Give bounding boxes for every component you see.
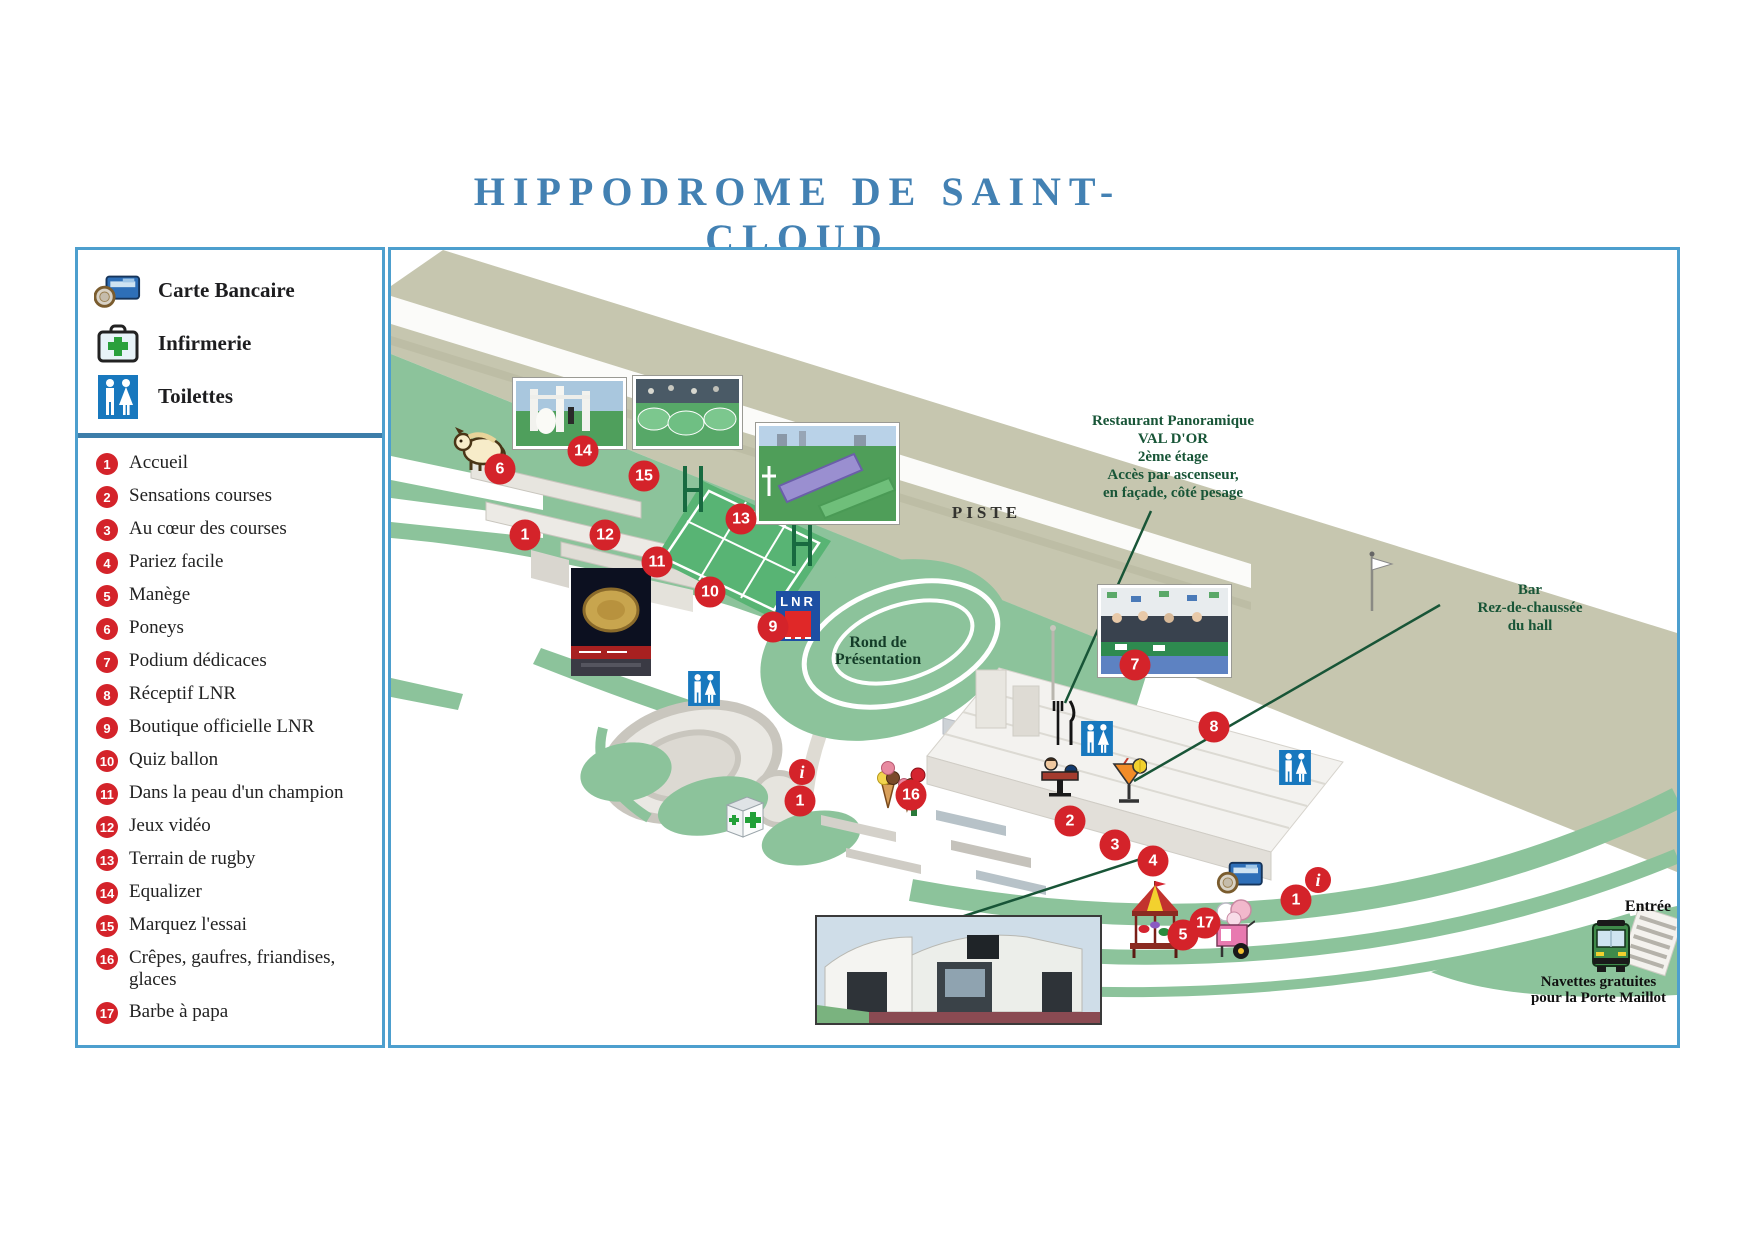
map-marker-9: 9 bbox=[758, 612, 789, 643]
legend-badge: 7 bbox=[96, 651, 118, 673]
legend-item-13: 13Terrain de rugby bbox=[96, 848, 374, 871]
toilets-icon bbox=[1276, 750, 1314, 785]
legend-item-14: 14Equalizer bbox=[96, 881, 374, 904]
map-marker-3: 3 bbox=[1100, 830, 1131, 861]
legend-list: 1Accueil 2Sensations courses 3Au cœur de… bbox=[78, 450, 382, 1024]
legend-item-5: 5Manège bbox=[96, 584, 374, 607]
legend-item-2: 2Sensations courses bbox=[96, 485, 374, 508]
legend-service-toilettes: Toilettes bbox=[78, 370, 382, 423]
legend-badge: 2 bbox=[96, 486, 118, 508]
legend-item-1: 1Accueil bbox=[96, 452, 374, 475]
map-marker-15: 15 bbox=[629, 461, 660, 492]
legend-badge: 4 bbox=[96, 552, 118, 574]
legend-badge: 16 bbox=[96, 948, 118, 970]
shuttle-bus-icon bbox=[1589, 918, 1633, 972]
map-marker-1-b: 1 bbox=[785, 786, 816, 817]
bar-annotation: Bar Rez-de-chaussée du hall bbox=[1450, 581, 1610, 635]
credit-card-icon bbox=[94, 273, 142, 309]
first-aid-icon bbox=[94, 323, 142, 365]
betting-table-icon bbox=[1039, 755, 1081, 797]
legend-badge: 1 bbox=[96, 453, 118, 475]
piste-label: PISTE bbox=[939, 503, 1034, 523]
legend-service-infirmerie: Infirmerie bbox=[78, 317, 382, 370]
lnr-flag-label: LNR bbox=[780, 594, 816, 609]
legend-service-carte-bancaire: Carte Bancaire bbox=[78, 264, 382, 317]
legend-divider bbox=[78, 433, 382, 438]
legend-badge: 6 bbox=[96, 618, 118, 640]
legend-item-17: 17Barbe à papa bbox=[96, 1001, 374, 1024]
map-marker-16: 16 bbox=[896, 780, 927, 811]
navettes-label: Navettes gratuites pour la Porte Maillot bbox=[1511, 974, 1680, 1006]
map-marker-2: 2 bbox=[1055, 806, 1086, 837]
map-marker-info-b: i bbox=[1305, 867, 1331, 893]
map-marker-1-c: 1 bbox=[1281, 885, 1312, 916]
legend-service-label: Toilettes bbox=[158, 384, 233, 409]
rond-presentation-label: Rond de Présentation bbox=[814, 634, 942, 668]
legend-item-8: 8Réceptif LNR bbox=[96, 683, 374, 706]
legend-item-3: 3Au cœur des courses bbox=[96, 518, 374, 541]
legend-item-7: 7Podium dédicaces bbox=[96, 650, 374, 673]
flagpole-icon bbox=[1366, 549, 1394, 613]
legend-badge: 9 bbox=[96, 717, 118, 739]
photo-champion-medal bbox=[571, 568, 651, 676]
map-panel: LNR bbox=[388, 247, 1680, 1048]
benches bbox=[821, 810, 1046, 895]
legend-badge: 13 bbox=[96, 849, 118, 871]
legend-badge: 8 bbox=[96, 684, 118, 706]
legend-badge: 14 bbox=[96, 882, 118, 904]
cocktail-bar-icon bbox=[1111, 758, 1147, 804]
legend-badge: 10 bbox=[96, 750, 118, 772]
legend-badge: 15 bbox=[96, 915, 118, 937]
map-marker-12: 12 bbox=[590, 520, 621, 551]
photo-equalizer bbox=[513, 378, 626, 449]
lnr-flag-red-block bbox=[785, 611, 811, 639]
map-marker-14: 14 bbox=[568, 436, 599, 467]
first-aid-building-icon bbox=[721, 793, 767, 841]
map-marker-13: 13 bbox=[726, 504, 757, 535]
map-marker-11: 11 bbox=[642, 547, 673, 578]
map-marker-10: 10 bbox=[695, 577, 726, 608]
map-marker-4: 4 bbox=[1138, 846, 1169, 877]
map-marker-17: 17 bbox=[1190, 908, 1221, 939]
photo-tentes-animations bbox=[815, 915, 1102, 1025]
map-marker-info-a: i bbox=[789, 759, 815, 785]
legend-panel: Carte Bancaire Infirmerie bbox=[75, 247, 385, 1048]
restaurant-annotation: Restaurant Panoramique VAL D'OR 2ème éta… bbox=[1048, 412, 1298, 502]
legend-badge: 5 bbox=[96, 585, 118, 607]
legend-item-11: 11Dans la peau d'un champion bbox=[96, 782, 374, 805]
legend-item-12: 12Jeux vidéo bbox=[96, 815, 374, 838]
legend-badge: 11 bbox=[96, 783, 118, 805]
map-canvas: LNR bbox=[391, 250, 1677, 1045]
legend-item-9: 9Boutique officielle LNR bbox=[96, 716, 374, 739]
credit-card-icon bbox=[1216, 860, 1266, 894]
legend-badge: 17 bbox=[96, 1002, 118, 1024]
toilets-icon bbox=[94, 375, 142, 419]
legend-item-6: 6Poneys bbox=[96, 617, 374, 640]
photo-podium-dedicaces bbox=[1098, 585, 1231, 677]
legend-item-15: 15Marquez l'essai bbox=[96, 914, 374, 937]
legend-item-4: 4Pariez facile bbox=[96, 551, 374, 574]
entree-label: Entrée bbox=[1608, 898, 1680, 916]
map-marker-7: 7 bbox=[1120, 650, 1151, 681]
toilets-icon bbox=[685, 671, 723, 706]
restaurant-fork-knife-icon bbox=[1049, 699, 1077, 747]
legend-service-label: Infirmerie bbox=[158, 331, 251, 356]
photo-terrain-rugby bbox=[756, 423, 899, 524]
toilets-icon bbox=[1076, 721, 1118, 756]
map-marker-8: 8 bbox=[1199, 712, 1230, 743]
legend-item-10: 10Quiz ballon bbox=[96, 749, 374, 772]
photo-marquez-essai bbox=[633, 376, 742, 449]
legend-badge: 12 bbox=[96, 816, 118, 838]
map-marker-1-a: 1 bbox=[510, 520, 541, 551]
legend-item-16: 16Crêpes, gaufres, friandises, glaces bbox=[96, 947, 374, 991]
map-marker-6: 6 bbox=[485, 454, 516, 485]
legend-badge: 3 bbox=[96, 519, 118, 541]
legend-service-label: Carte Bancaire bbox=[158, 278, 295, 303]
